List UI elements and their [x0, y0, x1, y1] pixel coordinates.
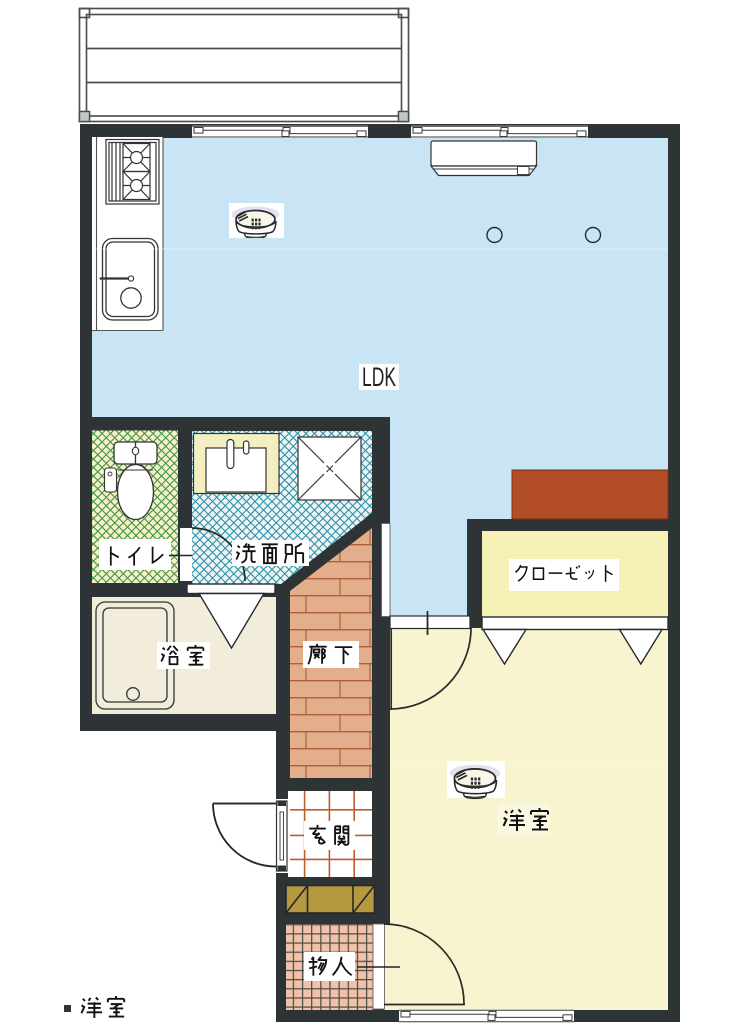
svg-text:LDK: LDK — [362, 362, 396, 392]
